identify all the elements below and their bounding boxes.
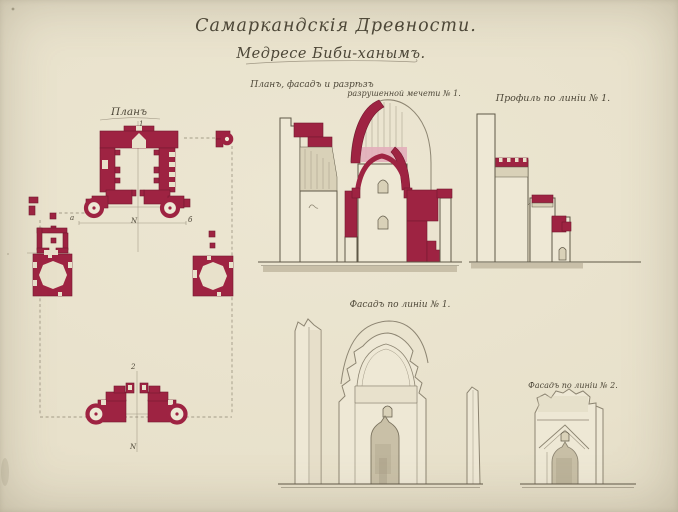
section-central-tower — [358, 164, 407, 262]
profile-mid-cap — [532, 195, 553, 203]
facade-left-pylon — [295, 319, 321, 484]
svg-text:N: N — [130, 217, 138, 225]
plan-tower-sw — [86, 200, 102, 216]
plan-fragment-east — [193, 231, 233, 296]
profile-small-step — [562, 222, 571, 231]
lancet-window — [378, 216, 388, 229]
facade-doorway — [371, 416, 399, 484]
svg-text:б: б — [188, 216, 193, 224]
plan-label: Планъ — [110, 106, 147, 118]
facade-right-tower — [467, 387, 480, 484]
section-lower-block — [300, 191, 337, 262]
facade-small-window — [561, 432, 569, 441]
section-left-pylon — [280, 118, 300, 262]
profile-drawing: Профиль по линіи № 1. — [469, 93, 641, 269]
facade-portal — [339, 333, 426, 484]
plan-portal — [88, 383, 186, 423]
section-sloped-wall — [300, 147, 337, 191]
profile-ground — [469, 262, 641, 269]
section-drawing: Планъ, фасадъ и разрѣзъ разрушенной мече… — [249, 80, 462, 272]
section-ground — [258, 262, 462, 272]
profile-door — [559, 248, 566, 261]
facade-small-drawing: Фасадъ по линіи № 2. — [520, 381, 636, 488]
svg-text:1: 1 — [139, 120, 143, 128]
plan-fragment-west — [29, 197, 72, 296]
plan-tower-se — [162, 200, 178, 216]
page-title: Самаркандскія Древности. — [195, 16, 477, 36]
facade-main-label: Фасадъ по линіи № 1. — [350, 300, 451, 310]
facade-small-label: Фасадъ по линіи № 2. — [528, 381, 618, 390]
scanned-plate: Самаркандскія Древности. Медресе Биби-ха… — [0, 0, 678, 512]
plan-drawing: Планъ — [27, 106, 233, 452]
profile-tall-tower — [477, 114, 495, 262]
facade-main-ground — [278, 484, 483, 488]
svg-text:а: а — [70, 214, 74, 222]
plan-fragment-ne — [216, 131, 231, 147]
svg-text:N: N — [129, 443, 137, 451]
page-subtitle: Медресе Биби-ханымъ. — [235, 46, 425, 62]
section-label-line2: разрушенной мечети № 1. — [347, 89, 460, 98]
profile-mid-shade — [532, 203, 553, 207]
lancet-window — [378, 180, 388, 193]
section-mid-pier-base — [345, 237, 357, 262]
profile-grey-band — [494, 167, 528, 177]
facade-small-window — [383, 406, 392, 417]
plate-artwork: Самаркандскія Древности. Медресе Биби-ха… — [0, 0, 678, 512]
facade-main-drawing: Фасадъ по линіи № 1. — [278, 300, 483, 488]
profile-mid-block — [530, 198, 555, 262]
svg-text:2: 2 — [130, 363, 136, 371]
profile-label: Профиль по линіи № 1. — [495, 93, 610, 104]
facade-small-annex — [596, 406, 603, 484]
plan-portal-tower-e — [169, 406, 186, 423]
section-red-step-1 — [294, 123, 323, 137]
facade-small-ground — [520, 484, 636, 488]
plan-label-underline — [100, 118, 160, 120]
section-right-masses — [407, 189, 452, 262]
plan-portal-tower-w — [88, 406, 105, 423]
section-red-step-2 — [308, 137, 332, 147]
